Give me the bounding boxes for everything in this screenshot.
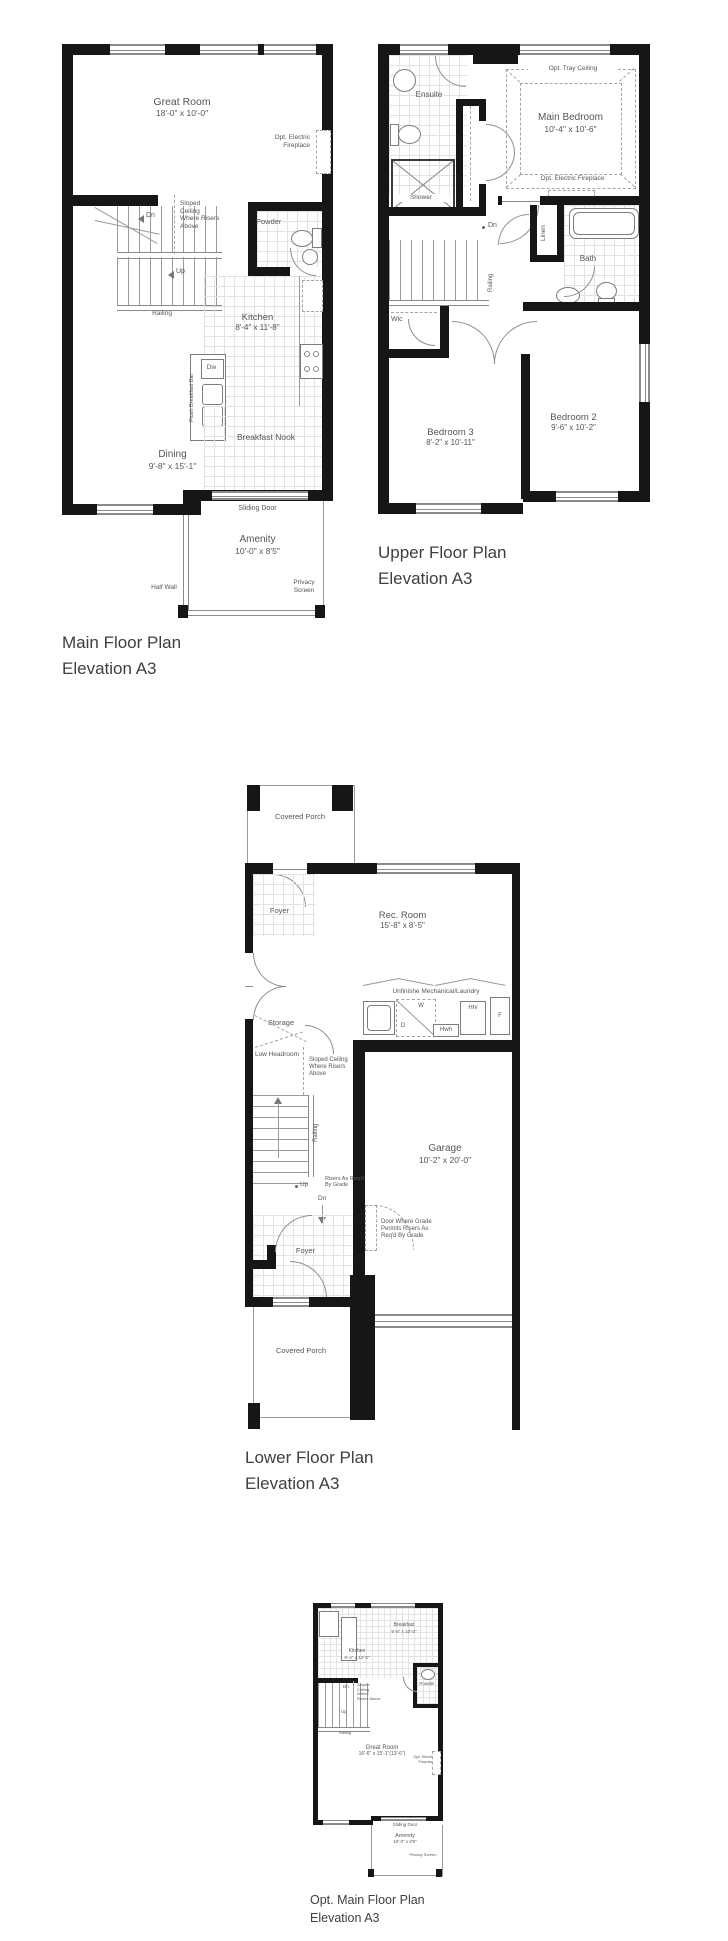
note-dn: Dn (318, 1195, 326, 1203)
room-label-bedroom3: Bedroom 3 8'-2" x 10'-11" (398, 427, 503, 448)
sloped-ceiling-line (174, 195, 176, 254)
room-label-kitchen: Kitchen 9'-4" x 12'-0" (335, 1649, 379, 1660)
room-dim: 15'-8" x 8'-5" (345, 921, 460, 930)
post (178, 605, 188, 618)
room-name: Rec. Room (345, 910, 460, 921)
wall (479, 99, 486, 121)
plan-title-upper: Upper Floor Plan Elevation A3 (378, 540, 578, 591)
wall (378, 207, 486, 216)
wall (413, 1704, 443, 1708)
foyer-floor (253, 874, 315, 936)
wall (523, 302, 650, 311)
wall (353, 1040, 520, 1052)
arrow-line (278, 1103, 279, 1158)
room-label-covered-porch: Covered Porch (270, 1347, 332, 1356)
room-dim: 10'-4" x 10'-6" (518, 124, 623, 134)
plan-title-main: Main Floor Plan Elevation A3 (62, 630, 262, 681)
laundry-tub-inner (367, 1005, 391, 1031)
wall (62, 44, 73, 515)
amenity-edge (323, 501, 324, 611)
note-up: Up (341, 1709, 347, 1714)
wall (389, 349, 449, 358)
opt-main-floor-plan: Breakfast 9'-6" x 10'-0" Kitchen 9'-4" x… (313, 1603, 445, 1933)
wall (639, 44, 650, 502)
shower (391, 159, 455, 211)
note-sliding-door: Sliding Door (210, 505, 305, 513)
wall (248, 202, 257, 276)
note-dn: Dn (488, 222, 497, 230)
wall (245, 863, 253, 1297)
fridge-box (302, 280, 323, 312)
room-label-dining: Dining 9'-8" x 15'-1" (130, 449, 215, 471)
note-dn: Dn (146, 212, 155, 220)
window (377, 863, 475, 874)
window (200, 44, 258, 55)
note-dn: Dn (343, 1684, 349, 1689)
porch-outline (253, 1307, 353, 1418)
window (520, 44, 610, 55)
window (110, 44, 165, 55)
door-arc (305, 1025, 334, 1054)
room-label-amenity: Amenity 10'-0" x 8'5" (377, 1833, 433, 1845)
main-floor-plan: Great Room 18'-0" x 10'-0" Opt. Electric… (62, 44, 333, 689)
bathtub-inner (573, 212, 635, 235)
note-dw: Dw (201, 364, 222, 372)
room-label-rec-room: Rec. Room 15'-8" x 8'-5" (345, 910, 460, 931)
door-opening (502, 196, 540, 205)
door-arc (253, 953, 286, 987)
plan-title-line1: Opt. Main Floor Plan (310, 1891, 480, 1909)
sloped-line (255, 1032, 303, 1048)
window (264, 44, 316, 55)
sink-basin (202, 384, 223, 405)
room-label-mechanical: Unfinishe Mechanical/Laundry (365, 988, 507, 996)
toilet-tank (312, 228, 322, 248)
sliding-door (381, 1817, 426, 1821)
room-dim: 8'-2" x 10'-11" (398, 438, 503, 447)
door-arc (452, 321, 495, 364)
wall (438, 1603, 443, 1821)
room-dim: 8'-4" x 11'-8" (220, 323, 295, 332)
note-door-grade: Door Where Grade Permits Risers As Req'd… (381, 1219, 437, 1240)
wall (479, 184, 486, 207)
floor-plan-sheet: Great Room 18'-0" x 10'-0" Opt. Electric… (0, 0, 728, 1941)
note-railing: Railing (313, 1113, 320, 1153)
note-low-headroom: Low Headroom (251, 1051, 303, 1059)
upper-floor-plan: Ensuite Shower Opt. Tray Ceiling Main Be… (378, 44, 650, 604)
room-label-kitchen: Kitchen 8'-4" x 11'-8" (220, 312, 295, 333)
closet-line (470, 106, 472, 201)
door-arc (494, 321, 537, 364)
window (97, 504, 153, 515)
window (400, 44, 448, 55)
half-wall-line (183, 515, 189, 611)
toilet-bowl (291, 230, 313, 247)
room-name: Great Room (117, 96, 247, 108)
furnace-unit: F (490, 997, 510, 1035)
hrv-unit: Hrv (460, 1001, 486, 1035)
plan-title-line1: Lower Floor Plan (245, 1445, 465, 1471)
wall (530, 205, 537, 262)
window (416, 503, 481, 514)
room-dim: 10'-0" x 8'5" (377, 1839, 433, 1844)
plan-title-line1: Upper Floor Plan (378, 540, 578, 566)
note-privacy-screen: Privacy Screen (286, 579, 322, 594)
post (247, 785, 260, 811)
room-label-linen: Linen (540, 212, 548, 254)
room-name: Bedroom 2 (526, 412, 621, 423)
room-name: Amenity (210, 534, 305, 546)
room-name: Kitchen (220, 312, 295, 323)
wall (248, 202, 322, 211)
note-shower: Shower (394, 194, 448, 202)
toilet-bowl (421, 1669, 435, 1680)
stairs (253, 1095, 308, 1190)
post (332, 785, 353, 811)
note-washer: W (415, 1003, 427, 1010)
note-sloped-ceiling: Sloped Ceiling Where Risers Above (357, 1683, 381, 1702)
sliding-door (212, 491, 308, 500)
wall (378, 44, 389, 514)
room-dim: 10'-0" x 8'5" (210, 546, 305, 556)
privacy-screen-line (183, 610, 324, 616)
room-name: Main Bedroom (518, 112, 623, 124)
note-dryer: D (397, 1023, 409, 1030)
room-label-powder: Powder (256, 218, 298, 227)
laundry-fixture (319, 1611, 339, 1637)
nook-floor (204, 406, 322, 490)
note-risers: Risers As Req'd By Grade (325, 1176, 365, 1189)
note-half-wall: Half Wall (148, 584, 180, 592)
note-tray-ceiling: Opt. Tray Ceiling (528, 65, 618, 73)
room-dim: 9'-8" x 15'-1" (130, 461, 215, 471)
room-dim: 9'-4" x 12'-0" (335, 1655, 379, 1660)
note-flush-breakfast-bar: Flush Breakfast Bar (189, 359, 195, 437)
window (556, 491, 618, 502)
door-opening (273, 863, 307, 874)
room-name: Dining (130, 449, 215, 461)
note-up: Up (176, 268, 185, 276)
door-arc (408, 319, 435, 346)
post (368, 1869, 374, 1877)
door-arc (290, 248, 316, 276)
wall (183, 490, 201, 515)
plan-title-line1: Main Floor Plan (62, 630, 262, 656)
wall (73, 195, 158, 206)
note-railing: Railing (132, 310, 192, 318)
plan-title-opt: Opt. Main Floor Plan Elevation A3 (310, 1891, 480, 1927)
room-label-bath: Bath (570, 254, 606, 263)
room-label-ensuite: Ensuite (406, 90, 452, 99)
bifold-door (435, 978, 471, 986)
railing-line (389, 300, 489, 306)
door-opening (273, 1297, 309, 1307)
note-opt-fireplace: Opt. Electric Fireplace (258, 134, 310, 149)
note-railing: Railing (488, 262, 495, 304)
room-label-great-room: Great Room 18'-0" x 10'-0" (117, 96, 247, 118)
bifold-door (398, 978, 434, 986)
wall (248, 267, 290, 276)
wall (456, 99, 463, 207)
hot-water-heater: Hwh (433, 1024, 459, 1037)
room-label-main-bedroom: Main Bedroom 10'-4" x 10'-6" (518, 112, 623, 134)
room-dim: 10'-2" x 20'-0" (390, 1155, 500, 1165)
fireplace-box (316, 130, 331, 174)
plan-title-line2: Elevation A3 (310, 1909, 480, 1927)
wall (473, 44, 518, 64)
room-label-breakfast: Breakfast 9'-6" x 10'-0" (375, 1623, 433, 1634)
wall (557, 205, 564, 262)
window (639, 344, 650, 402)
plan-title-line2: Elevation A3 (378, 566, 578, 592)
wall (353, 1040, 365, 1310)
bifold-door (470, 978, 506, 986)
room-label-amenity: Amenity 10'-0" x 8'5" (210, 534, 305, 556)
stairs (389, 240, 485, 300)
note-opt-fireplace: Opt. Electric Fireplace (530, 175, 615, 183)
room-label-covered-porch: Covered Porch (267, 813, 333, 822)
note-up: Up (300, 1181, 308, 1189)
marker-dot (482, 226, 485, 229)
plan-title-line2: Elevation A3 (62, 656, 262, 682)
door-arc (403, 1677, 417, 1692)
counter-line (299, 276, 300, 406)
wall (512, 863, 520, 1430)
room-dim: 18'-0" x 10'-0" (117, 108, 247, 118)
plan-title-lower: Lower Floor Plan Elevation A3 (245, 1445, 465, 1496)
post (436, 1869, 442, 1877)
sink (393, 69, 416, 92)
fireplace-box (432, 1751, 441, 1775)
note-sloped-ceiling: Sloped Ceiling Where Risers Above (309, 1057, 351, 1078)
sloped-ceiling-line (303, 1047, 305, 1095)
door-arc (253, 986, 286, 1020)
post (315, 605, 325, 618)
closet-rod (391, 312, 437, 314)
garage-door (375, 1314, 512, 1328)
arrow-icon (138, 215, 144, 223)
room-dim: 9'-6" x 10'-2" (526, 423, 621, 432)
pier (350, 1275, 375, 1420)
window (323, 1820, 349, 1825)
sloped-ceiling-line (353, 1681, 355, 1701)
note-sloped-ceiling: Sloped Ceiling Where Risers Above (180, 200, 220, 231)
arrow-icon (168, 271, 174, 279)
room-label-powder: Powder (414, 1681, 440, 1686)
post (248, 1403, 260, 1429)
room-label-garage: Garage 10'-2" x 20'-0" (390, 1143, 500, 1165)
lower-floor-plan: Covered Porch Foyer Rec. Room 15'-8" x 8… (245, 785, 525, 1515)
note-railing: Railing (325, 1731, 365, 1736)
wall (322, 44, 333, 501)
room-label-bedroom2: Bedroom 2 9'-6" x 10'-2" (526, 412, 621, 433)
room-label-foyer: Foyer (257, 907, 302, 916)
wall (530, 255, 564, 262)
door-opening (245, 953, 253, 1019)
plan-title-line2: Elevation A3 (245, 1471, 465, 1497)
toilet-bowl (398, 125, 421, 144)
room-name: Bedroom 3 (398, 427, 503, 438)
stove (300, 344, 323, 379)
room-label-breakfast-nook: Breakfast Nook (230, 432, 302, 442)
room-name: Garage (390, 1143, 500, 1155)
bifold-door (363, 978, 399, 986)
room-dim: 9'-6" x 10'-0" (375, 1629, 433, 1634)
marker-dot (295, 1185, 298, 1188)
note-privacy-screen: Privacy Screen (409, 1853, 437, 1858)
